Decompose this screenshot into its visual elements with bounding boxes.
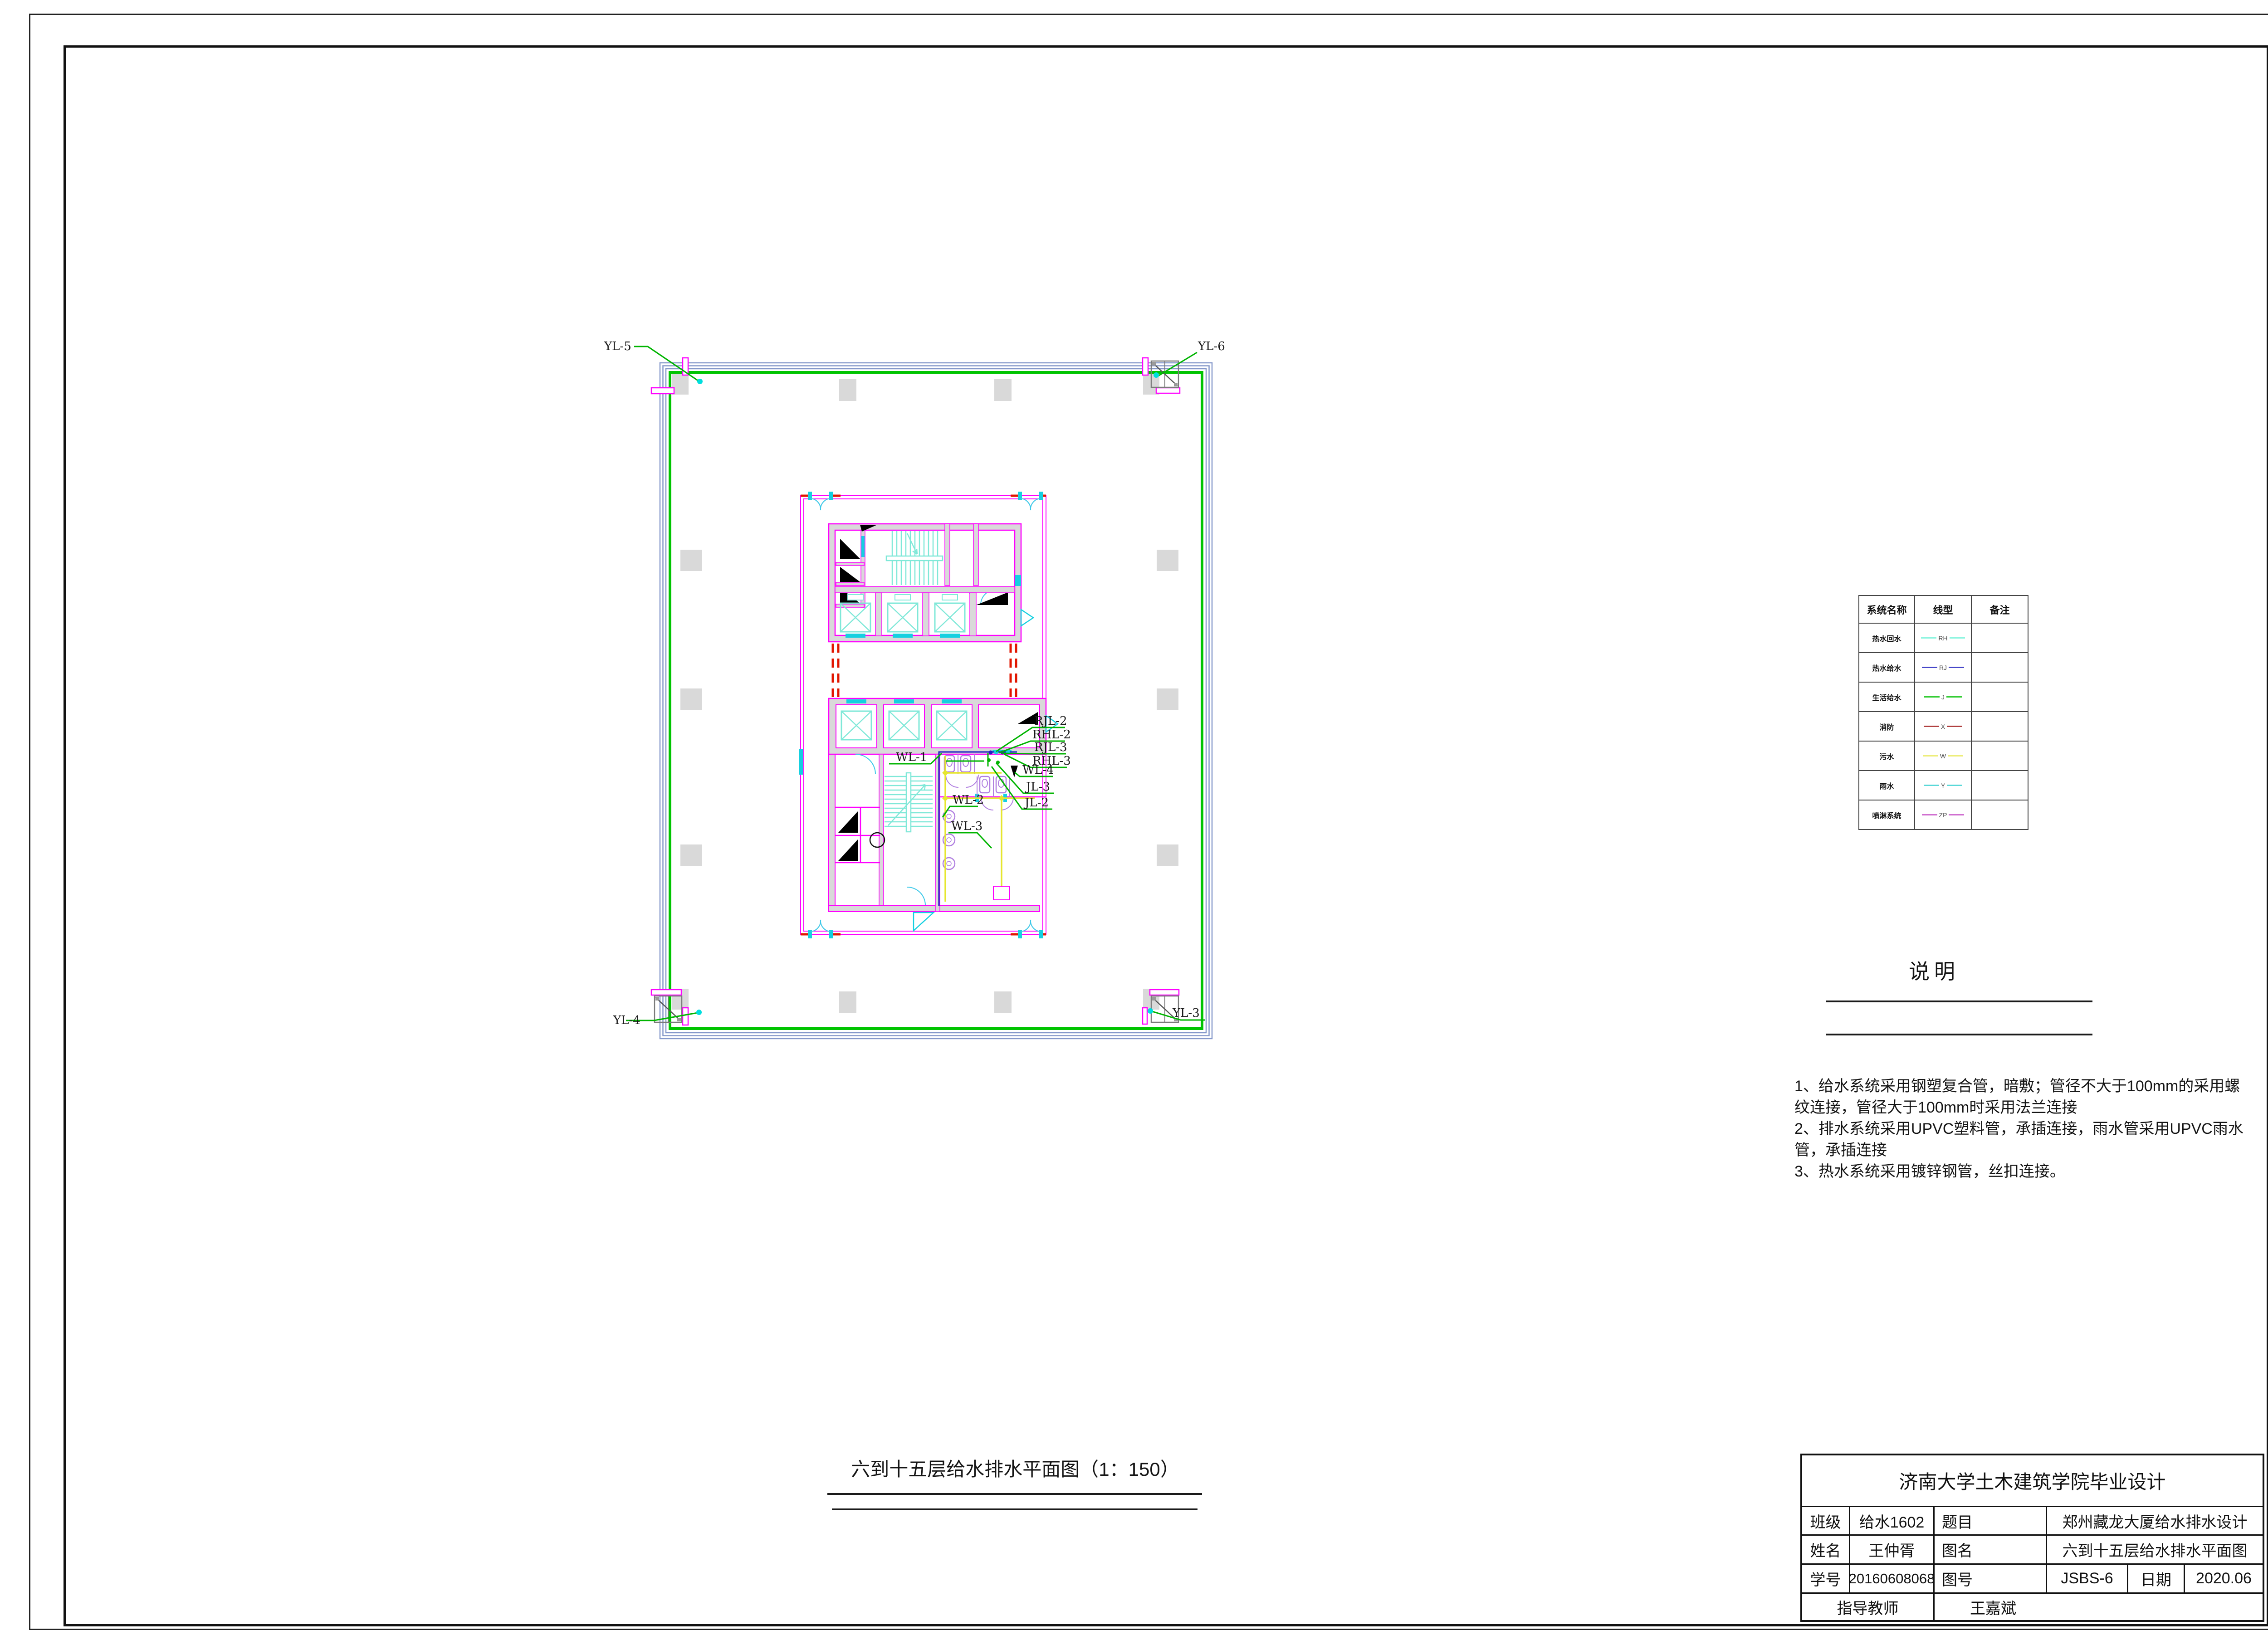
label-jl3: JL-3 [1025,780,1050,794]
legend-remark [1972,771,2028,800]
columns [672,374,1178,1013]
legend-remark [1972,624,2028,652]
legend-line-sample: ZP [1922,811,1965,819]
legend-header-linetype: 线型 [1915,596,1972,623]
legend-name: 热水给水 [1859,653,1915,682]
legend-line-sample: Y [1924,782,1962,789]
date-value: 2020.06 [2185,1565,2263,1594]
core-lower-block [799,698,1058,931]
legend-line-sample: J [1924,693,1962,701]
legend-line-sample: X [1924,723,1962,730]
notes-body: 1、给水系统采用钢塑复合管，暗敷；管径不大于100mm的采用螺 纹连接，管径大于… [1794,1076,2244,1182]
note-line: 纹连接，管径大于100mm时采用法兰连接 [1794,1097,2244,1118]
notes-rule-1 [1826,1001,2092,1002]
label-wl1: WL-1 [896,751,927,764]
label-yl4: YL-4 [613,1014,640,1027]
advisor-label: 指导教师 [1802,1594,1935,1620]
student-id-label: 学号 [1802,1565,1850,1594]
notes-rule-2 [1826,1034,2092,1035]
legend-row: 热水给水 RJ [1859,652,2028,682]
date-label: 日期 [2128,1565,2185,1594]
legend-row: 生活给水 J [1859,682,2028,711]
corner-stair-symbols [655,361,1178,1022]
note-line: 2、排水系统采用UPVC塑料管，承插连接，雨水管采用UPVC雨水 [1794,1118,2244,1140]
drawing-sheet: YL-5 YL-6 YL-4 YL-3 WL-1 WL-2 WL-3 WL-4 … [0,0,2268,1640]
titleblock-school: 济南大学土木建筑学院毕业设计 [1802,1455,2263,1507]
fire-dashed-lines [833,644,1016,697]
legend-name: 生活给水 [1859,683,1915,711]
notes-title: 说明 [1909,955,1960,985]
legend-name: 雨水 [1859,771,1915,800]
legend-remark [1972,653,2028,682]
student-id-value: 20160608068 [1850,1565,1935,1594]
class-label: 班级 [1802,1507,1850,1536]
legend-name: 喷淋系统 [1859,800,1915,829]
legend-name: 消防 [1859,712,1915,741]
legend-header-system: 系统名称 [1859,596,1915,623]
name-value: 王仲胥 [1850,1536,1935,1565]
legend-row: 雨水 Y [1859,770,2028,800]
legend-row: 污水 W [1859,741,2028,770]
legend-header-row: 系统名称 线型 备注 [1859,596,2028,623]
legend-line-sample: RJ [1922,664,1964,671]
subject-label: 题目 [1935,1507,2047,1536]
advisor-value: 王嘉斌 [1935,1594,2263,1620]
label-yl6: YL-6 [1198,340,1225,353]
figno-label: 图号 [1935,1565,2047,1594]
legend-remark [1972,742,2028,770]
name-label: 姓名 [1802,1536,1850,1565]
drawing-title: 六到十五层给水排水平面图（1：150） [830,1454,1200,1482]
figname-label: 图名 [1935,1536,2047,1565]
legend-row: 喷淋系统 ZP [1859,800,2028,829]
plan-labels: YL-5 YL-6 YL-4 YL-3 WL-1 WL-2 WL-3 WL-4 … [604,340,1225,1027]
figno-value: JSBS-6 [2047,1565,2128,1594]
legend-name: 热水回水 [1859,624,1915,652]
legend-row: 热水回水 RH [1859,623,2028,652]
title-block: 济南大学土木建筑学院毕业设计 班级 给水1602 题目 郑州藏龙大厦给水排水设计… [1800,1454,2264,1622]
label-rjl2: RJL-2 [1034,714,1067,728]
legend-remark [1972,712,2028,741]
drawing-title-rule-2 [832,1508,1198,1510]
note-line: 3、热水系统采用镀锌钢管，丝扣连接。 [1794,1161,2244,1182]
label-yl3: YL-3 [1172,1006,1200,1020]
class-value: 给水1602 [1850,1507,1935,1536]
label-rhl2: RHL-2 [1032,728,1071,742]
legend-table: 系统名称 线型 备注 热水回水 RH 热水给水 RJ 生活给水 J 消防 X 污… [1858,595,2028,830]
corner-stubs [651,358,1180,1025]
drawing-title-rule-1 [827,1493,1202,1495]
label-rhl3: RHL-3 [1032,754,1071,768]
pipe-leaders [626,347,1205,1020]
note-line: 1、给水系统采用钢塑复合管，暗敷；管径不大于100mm的采用螺 [1794,1076,2244,1097]
label-wl3: WL-3 [951,820,982,833]
core-upper-block [829,524,1033,642]
label-yl5: YL-5 [604,340,631,353]
legend-header-remark: 备注 [1972,596,2028,623]
legend-line-sample: W [1923,752,1963,760]
label-wl2: WL-2 [953,793,984,807]
legend-row: 消防 X [1859,711,2028,741]
subject-value: 郑州藏龙大厦给水排水设计 [2047,1507,2263,1536]
legend-line-sample: RH [1921,635,1965,642]
label-rjl3: RJL-3 [1034,741,1067,754]
legend-name: 污水 [1859,742,1915,770]
note-line: 管，承插连接 [1794,1140,2244,1161]
legend-remark [1972,683,2028,711]
legend-remark [1972,800,2028,829]
label-jl2: JL-2 [1023,796,1049,810]
figname-value: 六到十五层给水排水平面图 [2047,1536,2263,1565]
